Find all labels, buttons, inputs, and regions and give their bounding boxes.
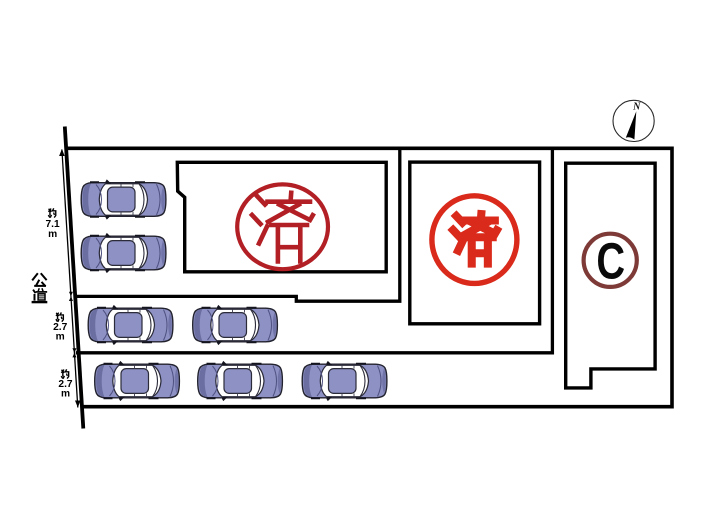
svg-text:m: m (48, 229, 57, 240)
svg-text:m: m (56, 332, 65, 343)
svg-text:m: m (61, 389, 70, 400)
svg-text:C: C (596, 233, 625, 290)
svg-text:N: N (632, 101, 641, 112)
